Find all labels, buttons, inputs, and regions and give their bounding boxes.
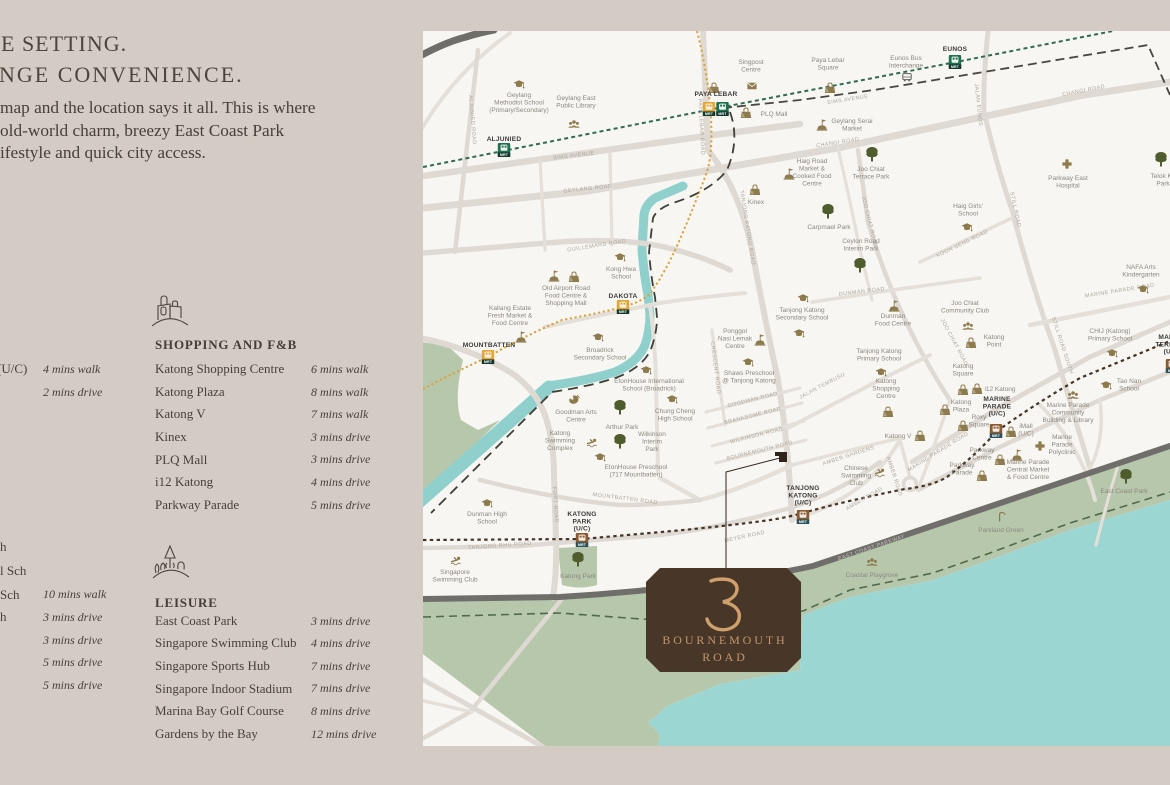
svg-text:EtonHouse International: EtonHouse International bbox=[614, 378, 684, 385]
svg-text:MOUNTBATTEN: MOUNTBATTEN bbox=[463, 342, 516, 349]
svg-text:Telok Ku: Telok Ku bbox=[1151, 173, 1170, 180]
svg-text:PLQ Mall: PLQ Mall bbox=[761, 111, 788, 118]
svg-text:School: School bbox=[1119, 386, 1139, 393]
svg-text:Interim Park: Interim Park bbox=[843, 246, 879, 253]
svg-text:Square: Square bbox=[953, 371, 974, 378]
svg-text:Parade: Parade bbox=[1052, 442, 1073, 449]
svg-text:Centre: Centre bbox=[972, 455, 992, 462]
svg-text:(U/C): (U/C) bbox=[1164, 349, 1170, 356]
svg-text:Cooked Food: Cooked Food bbox=[792, 173, 831, 180]
svg-text:Ceylon Road: Ceylon Road bbox=[842, 238, 880, 245]
svg-text:ROAD: ROAD bbox=[702, 650, 748, 664]
svg-text:Terrace Park: Terrace Park bbox=[853, 174, 891, 181]
svg-text:Chinese: Chinese bbox=[844, 465, 868, 472]
svg-text:Kinex: Kinex bbox=[748, 199, 765, 206]
svg-text:School: School bbox=[611, 274, 631, 281]
svg-text:Point: Point bbox=[987, 342, 1002, 349]
svg-text:Arthur Park: Arthur Park bbox=[606, 424, 640, 431]
svg-text:Central Market: Central Market bbox=[1007, 467, 1050, 474]
svg-text:Parkway East: Parkway East bbox=[1048, 175, 1088, 182]
svg-text:Public Library: Public Library bbox=[556, 103, 596, 110]
svg-text:Centre: Centre bbox=[725, 343, 745, 350]
svg-text:Hospital: Hospital bbox=[1056, 183, 1080, 190]
svg-text:Swimming: Swimming bbox=[841, 473, 871, 480]
svg-text:Parade: Parade bbox=[952, 470, 973, 477]
svg-text:Katong: Katong bbox=[876, 378, 897, 385]
svg-text:Dunman High: Dunman High bbox=[467, 511, 507, 518]
svg-text:PARK: PARK bbox=[573, 518, 592, 525]
svg-text:(U/C): (U/C) bbox=[1018, 431, 1034, 438]
svg-text:PARADE: PARADE bbox=[983, 403, 1012, 410]
svg-text:EUNOS: EUNOS bbox=[943, 46, 968, 53]
svg-text:Marine Parade: Marine Parade bbox=[1007, 459, 1050, 466]
svg-text:Goodman Arts: Goodman Arts bbox=[555, 409, 597, 416]
svg-text:Carpmael Park: Carpmael Park bbox=[807, 224, 851, 231]
svg-text:Nasi Lemak: Nasi Lemak bbox=[718, 336, 753, 343]
svg-text:(U/C): (U/C) bbox=[574, 526, 591, 533]
svg-text:Parkway: Parkway bbox=[970, 447, 996, 454]
svg-text:East Coast Park: East Coast Park bbox=[1101, 488, 1149, 495]
svg-text:& Food Centre: & Food Centre bbox=[1007, 474, 1050, 481]
svg-text:Centre: Centre bbox=[876, 393, 896, 400]
svg-text:i12 Katong: i12 Katong bbox=[984, 386, 1015, 393]
svg-text:Park: Park bbox=[1156, 181, 1170, 188]
svg-text:Joo Chiat: Joo Chiat bbox=[951, 300, 979, 307]
svg-text:TERRACE: TERRACE bbox=[1155, 341, 1170, 348]
svg-text:Building & Library: Building & Library bbox=[1043, 417, 1095, 424]
svg-text:Secondary School: Secondary School bbox=[776, 315, 829, 322]
svg-text:Primary School: Primary School bbox=[857, 356, 902, 363]
svg-text:Tanjong Katong: Tanjong Katong bbox=[856, 348, 902, 355]
svg-text:Complex: Complex bbox=[547, 445, 573, 452]
svg-text:Old Airport Road: Old Airport Road bbox=[542, 285, 590, 292]
svg-text:Katong Park: Katong Park bbox=[560, 573, 597, 580]
svg-text:Marine Parade: Marine Parade bbox=[1047, 402, 1090, 409]
svg-text:Shaws Preschool: Shaws Preschool bbox=[724, 370, 775, 377]
svg-text:(U/C): (U/C) bbox=[795, 500, 812, 507]
svg-text:Secondary School: Secondary School bbox=[574, 355, 627, 362]
svg-text:NAFA Arts: NAFA Arts bbox=[1126, 264, 1156, 271]
svg-text:Community Club: Community Club bbox=[941, 308, 989, 315]
svg-text:Joo Chiat: Joo Chiat bbox=[857, 166, 885, 173]
svg-text:Interim: Interim bbox=[642, 439, 662, 446]
svg-text:Geylang East: Geylang East bbox=[556, 95, 595, 102]
svg-text:MARINE: MARINE bbox=[1158, 334, 1170, 341]
svg-text:DAKOTA: DAKOTA bbox=[609, 293, 638, 300]
svg-text:Interchange: Interchange bbox=[889, 63, 924, 70]
svg-text:Roxy: Roxy bbox=[972, 414, 988, 421]
svg-text:Chung Cheng: Chung Cheng bbox=[655, 408, 695, 415]
svg-text:School: School bbox=[477, 519, 497, 526]
svg-text:BOURNEMOUTH: BOURNEMOUTH bbox=[662, 633, 787, 647]
svg-text:Kallang Estate: Kallang Estate bbox=[489, 305, 531, 312]
svg-text:Primary School: Primary School bbox=[1088, 336, 1133, 343]
svg-text:@ Tanjong Katong: @ Tanjong Katong bbox=[722, 378, 776, 385]
svg-text:Marine: Marine bbox=[1052, 434, 1072, 441]
svg-text:Centre: Centre bbox=[566, 417, 586, 424]
svg-text:Tao Nan: Tao Nan bbox=[1117, 378, 1142, 385]
svg-text:Club: Club bbox=[849, 480, 863, 487]
svg-text:Polyclinic: Polyclinic bbox=[1048, 449, 1076, 456]
svg-text:KATONG: KATONG bbox=[567, 511, 596, 518]
svg-text:Singapore: Singapore bbox=[440, 569, 470, 576]
svg-text:PAYA LEBAR: PAYA LEBAR bbox=[695, 91, 738, 98]
svg-text:Katong: Katong bbox=[953, 363, 974, 370]
svg-text:Food Centre: Food Centre bbox=[875, 321, 912, 328]
svg-text:ALJUNIED: ALJUNIED bbox=[487, 136, 522, 143]
svg-text:Community: Community bbox=[1052, 410, 1086, 417]
svg-text:Dunman: Dunman bbox=[881, 313, 906, 320]
svg-text:Geylang: Geylang bbox=[507, 92, 532, 99]
svg-text:Food Centre &: Food Centre & bbox=[545, 293, 588, 300]
svg-text:Kindergarten: Kindergarten bbox=[1122, 272, 1160, 279]
svg-text:Katong V: Katong V bbox=[885, 433, 912, 440]
svg-text:Kong Hwa: Kong Hwa bbox=[606, 266, 636, 273]
svg-text:Eunos Bus: Eunos Bus bbox=[890, 55, 922, 62]
svg-text:Plaza: Plaza bbox=[953, 407, 970, 414]
svg-text:Square: Square bbox=[969, 422, 990, 429]
svg-text:Swimming: Swimming bbox=[545, 438, 575, 445]
svg-text:CHIJ (Katong): CHIJ (Katong) bbox=[1089, 328, 1130, 335]
svg-text:Parkland Green: Parkland Green bbox=[978, 527, 1024, 534]
svg-text:School: School bbox=[958, 211, 978, 218]
svg-text:Parkway: Parkway bbox=[950, 462, 976, 469]
svg-text:Haig Road: Haig Road bbox=[797, 158, 828, 165]
svg-text:Market &: Market & bbox=[799, 166, 826, 173]
svg-text:Centre: Centre bbox=[741, 67, 761, 74]
svg-text:Singpost: Singpost bbox=[738, 59, 763, 66]
svg-text:Broadrick: Broadrick bbox=[586, 347, 614, 354]
svg-text:School (Broadrick): School (Broadrick) bbox=[622, 386, 675, 393]
svg-text:Katong: Katong bbox=[951, 399, 972, 406]
svg-text:Centre: Centre bbox=[802, 181, 822, 188]
svg-text:Coastal Playgrove: Coastal Playgrove bbox=[846, 572, 899, 579]
svg-text:(Primary/Secondary): (Primary/Secondary) bbox=[489, 107, 549, 114]
svg-text:(U/C): (U/C) bbox=[989, 411, 1006, 418]
svg-text:TANJONG: TANJONG bbox=[786, 485, 819, 492]
svg-text:Ponggol: Ponggol bbox=[723, 328, 747, 335]
svg-text:High School: High School bbox=[657, 416, 693, 423]
svg-text:Katong: Katong bbox=[550, 430, 571, 437]
svg-text:Fresh Market &: Fresh Market & bbox=[488, 313, 533, 320]
svg-text:Food Centre: Food Centre bbox=[492, 320, 529, 327]
svg-text:(717 Mountbatten): (717 Mountbatten) bbox=[609, 472, 662, 479]
svg-text:Haig Girls': Haig Girls' bbox=[953, 203, 983, 210]
svg-text:MARINE: MARINE bbox=[983, 396, 1011, 403]
svg-text:Shopping: Shopping bbox=[872, 386, 900, 393]
svg-text:Geylang Serai: Geylang Serai bbox=[831, 118, 872, 125]
svg-text:Methodist School: Methodist School bbox=[494, 100, 544, 107]
svg-text:Shopping Mall: Shopping Mall bbox=[545, 300, 587, 307]
svg-text:Park: Park bbox=[645, 446, 659, 453]
svg-text:Tanjong Katong: Tanjong Katong bbox=[779, 307, 825, 314]
svg-text:Katong: Katong bbox=[984, 334, 1005, 341]
svg-text:KATONG: KATONG bbox=[788, 492, 817, 499]
svg-text:Swimming Club: Swimming Club bbox=[432, 577, 478, 584]
svg-text:Paya Lebar: Paya Lebar bbox=[811, 57, 845, 64]
svg-text:EtonHouse Preschool: EtonHouse Preschool bbox=[605, 464, 668, 471]
svg-text:Square: Square bbox=[818, 65, 839, 72]
svg-text:iMall: iMall bbox=[1019, 423, 1033, 430]
svg-text:Market: Market bbox=[842, 126, 862, 133]
svg-text:Wilkinson: Wilkinson bbox=[638, 431, 666, 438]
